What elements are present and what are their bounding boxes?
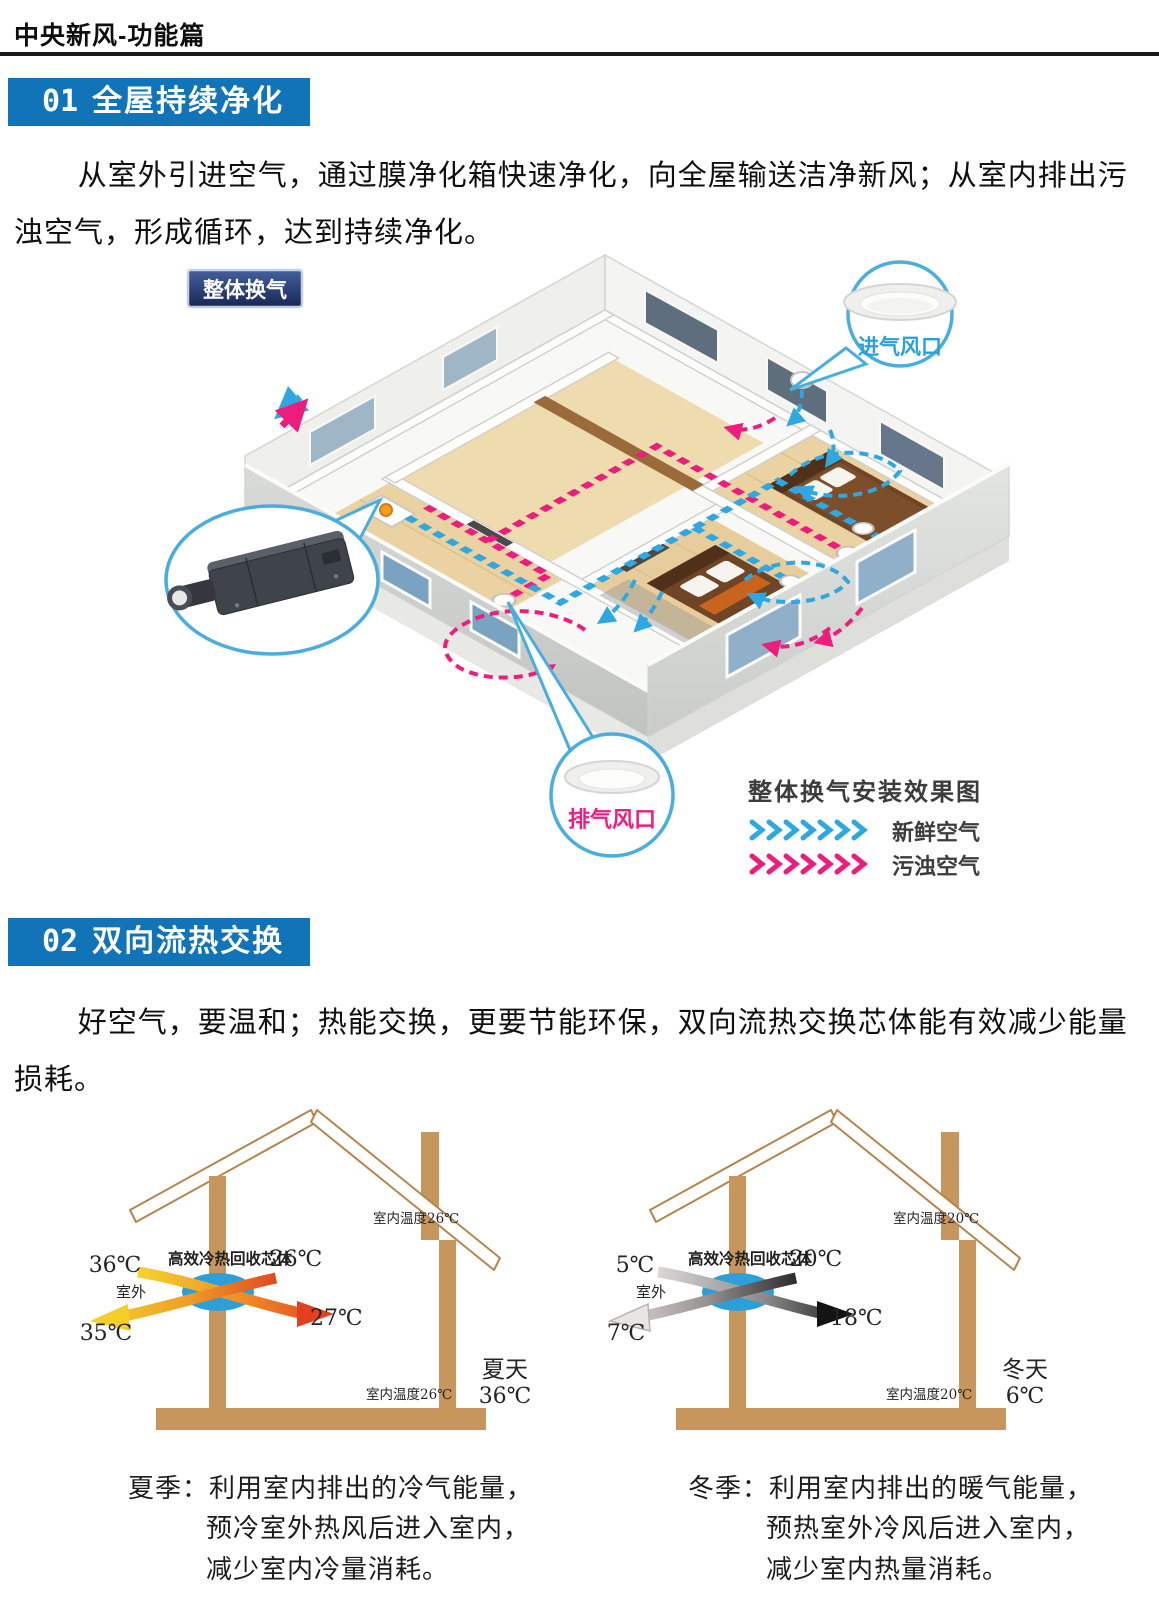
supply-in-temp: 27℃ — [310, 1306, 363, 1331]
unit-callout — [163, 500, 380, 654]
exhaust-out-temp: 7℃ — [607, 1321, 646, 1346]
summer-heat-exchange-figure: 36℃ 26℃ 35℃ 27℃ 室外 室内温度26℃ 室内温度26℃ 夏天 36… — [68, 1082, 538, 1450]
indoor-temp-roof: 室内温度26℃ — [373, 1210, 459, 1227]
header-rule — [0, 52, 1159, 56]
exhaust-callout-label: 排气风口 — [568, 807, 656, 832]
section2-banner: 02双向流热交换 — [8, 918, 310, 966]
winter-heat-exchange-figure: 5℃ 20℃ 7℃ 18℃ 室外 室内温度20℃ 室内温度20℃ 冬天 6℃ 高… — [588, 1082, 1058, 1450]
summer-caption-line2: 预冷室外热风后进入室内， — [128, 1508, 533, 1548]
roof-right-beam — [831, 1110, 1020, 1270]
season-label: 夏天 — [482, 1357, 528, 1383]
winter-caption: 冬季：利用室内排出的暖气能量， 预热室外冷风后进入室内， 减少室内热量消耗。 — [688, 1468, 1093, 1589]
section1-title: 全屋持续净化 — [92, 85, 284, 118]
section2-number: 02 — [42, 924, 78, 959]
unit-indicator-light — [380, 504, 392, 516]
fresh-air-arrow-icon — [752, 822, 864, 838]
core-label: 高效冷热回收芯体 — [168, 1249, 293, 1268]
season-temp: 36℃ — [479, 1384, 532, 1409]
section1-number: 01 — [42, 84, 78, 119]
summer-caption-line1: 夏季：利用室内排出的冷气能量， — [128, 1468, 533, 1508]
right-wall — [439, 1240, 456, 1408]
polluted-air-arrow-icon — [752, 856, 864, 872]
indoor-temp-roof: 室内温度20℃ — [893, 1210, 979, 1227]
legend-title: 整体换气安装效果图 — [748, 778, 982, 806]
section1-banner: 01全屋持续净化 — [8, 78, 310, 126]
outdoor-label: 室外 — [116, 1283, 146, 1301]
indoor-temp-floor: 室内温度20℃ — [886, 1386, 972, 1403]
winter-caption-line1: 冬季：利用室内排出的暖气能量， — [688, 1468, 1093, 1508]
legend-polluted-label: 污浊空气 — [892, 854, 980, 879]
winter-caption-line2: 预热室外冷风后进入室内， — [688, 1508, 1093, 1548]
core-label: 高效冷热回收芯体 — [688, 1249, 813, 1268]
indoor-temp-floor: 室内温度26℃ — [366, 1386, 452, 1403]
figure-tag: 整体换气 — [188, 270, 302, 307]
outdoor-in-temp: 36℃ — [89, 1253, 142, 1278]
brochure-page: 中央新风-功能篇 01全屋持续净化 从室外引进空气，通过膜净化箱快速净化，向全屋… — [0, 0, 1159, 1600]
floor — [676, 1408, 1006, 1430]
roof-right-beam — [311, 1110, 500, 1270]
legend-fresh-label: 新鲜空气 — [892, 820, 980, 845]
summer-caption-line3: 减少室内冷量消耗。 — [128, 1549, 533, 1589]
section2-title: 双向流热交换 — [92, 925, 284, 958]
floor — [156, 1408, 486, 1430]
figure-legend: 整体换气安装效果图 新鲜空气 污浊空气 — [748, 778, 982, 879]
right-wall — [959, 1240, 976, 1408]
page-title: 中央新风-功能篇 — [14, 16, 205, 52]
outdoor-label: 室外 — [636, 1283, 666, 1301]
outdoor-in-temp: 5℃ — [616, 1253, 655, 1278]
intake-callout-label: 进气风口 — [858, 335, 942, 359]
exhaust-out-temp: 35℃ — [80, 1321, 133, 1346]
season-label: 冬天 — [1002, 1357, 1048, 1383]
season-temp: 6℃ — [1006, 1384, 1045, 1409]
whole-house-ventilation-figure: 整体换气 进气风口 — [130, 250, 1030, 882]
summer-caption: 夏季：利用室内排出的冷气能量， 预冷室外热风后进入室内， 减少室内冷量消耗。 — [128, 1468, 533, 1589]
winter-caption-line3: 减少室内热量消耗。 — [688, 1549, 1093, 1589]
intake-callout: 进气风口 — [790, 262, 956, 390]
section1-paragraph: 从室外引进空气，通过膜净化箱快速净化，向全屋输送洁净新风；从室内排出污浊空气，形… — [14, 148, 1146, 261]
supply-in-temp: 18℃ — [830, 1306, 883, 1331]
figure-tag-label: 整体换气 — [203, 278, 287, 302]
